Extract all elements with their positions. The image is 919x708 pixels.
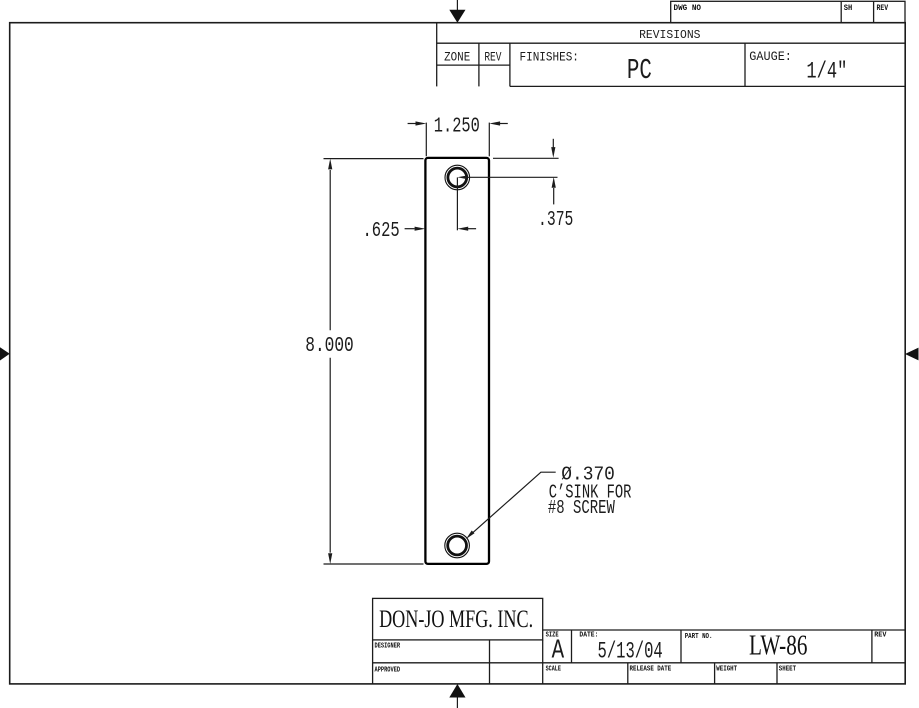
svg-text:GAUGE:: GAUGE: — [749, 50, 792, 64]
svg-text:DON-JO MFG. INC.: DON-JO MFG. INC. — [379, 606, 533, 633]
svg-text:.375: .375 — [538, 209, 573, 232]
svg-text:DESIGNER: DESIGNER — [375, 643, 401, 651]
svg-text:DWG NO: DWG NO — [674, 4, 702, 13]
svg-text:PC: PC — [627, 54, 652, 87]
svg-text:.625: .625 — [363, 220, 400, 243]
svg-text:PART NO.: PART NO. — [685, 633, 713, 641]
svg-text:REV: REV — [484, 49, 501, 64]
svg-text:1.250: 1.250 — [434, 115, 480, 138]
svg-text:REV: REV — [877, 4, 889, 13]
svg-text:#8 SCREW: #8 SCREW — [548, 497, 615, 519]
svg-text:ZONE: ZONE — [444, 49, 470, 64]
svg-text:LW-86: LW-86 — [749, 631, 808, 662]
svg-text:APPROVED: APPROVED — [375, 667, 401, 675]
svg-text:SHEET: SHEET — [779, 666, 796, 674]
svg-text:SH: SH — [844, 4, 853, 13]
svg-text:FINISHES:: FINISHES: — [520, 49, 579, 64]
svg-text:REV: REV — [874, 632, 887, 640]
svg-text:RELEASE DATE: RELEASE DATE — [630, 666, 672, 674]
svg-text:A: A — [552, 635, 565, 665]
svg-text:REVISIONS: REVISIONS — [639, 29, 700, 42]
svg-text:WEIGHT: WEIGHT — [716, 666, 737, 674]
svg-text:8.000: 8.000 — [305, 335, 354, 358]
svg-text:5/13/04: 5/13/04 — [598, 638, 663, 664]
svg-text:1/4″: 1/4″ — [806, 59, 847, 85]
svg-text:DATE:: DATE: — [579, 632, 598, 640]
svg-text:SCALE: SCALE — [546, 666, 561, 674]
